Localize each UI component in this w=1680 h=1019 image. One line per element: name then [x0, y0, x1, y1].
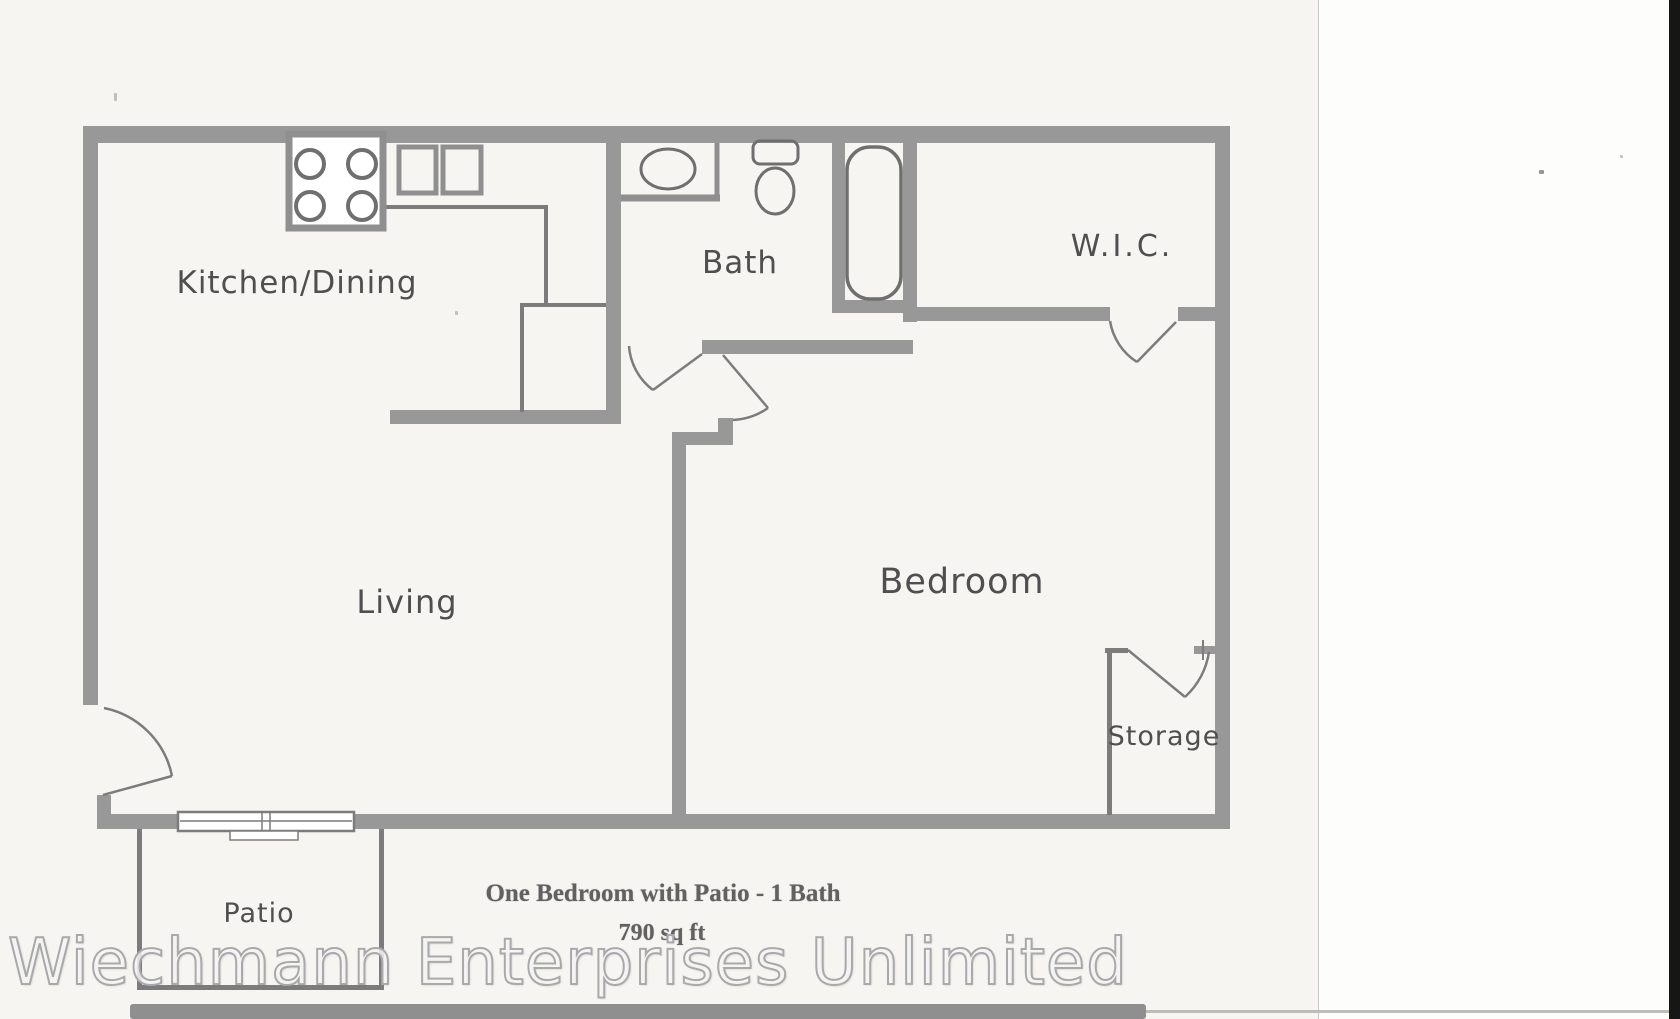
storage-wall-top [1105, 648, 1128, 653]
storage-door-arc-icon [1185, 652, 1209, 697]
room-label-living: Living [337, 585, 477, 620]
wall-bottom-left [97, 814, 180, 829]
kitchen-counter-edge [383, 205, 548, 209]
bath-door-arc-icon [629, 346, 653, 390]
sliding-door-icon [178, 812, 354, 840]
wic-door-arc-icon [1110, 321, 1137, 362]
toilet-tank-icon [753, 141, 798, 164]
wall-wic-bottom [908, 307, 1110, 321]
wall-storage-door-jamb [1194, 646, 1215, 654]
room-label-kitchen-dining: Kitchen/Dining [172, 266, 422, 300]
wall-left [83, 143, 98, 705]
toilet-bowl-icon [756, 168, 794, 214]
bedroom-door-leaf-icon [723, 355, 768, 408]
wic-door-leaf-icon [1137, 322, 1176, 362]
scanned-floorplan-page: Kitchen/Dining Bath W.I.C. Living Bedroo… [0, 0, 1680, 1019]
wall-bottom-right [351, 814, 1230, 829]
kitchen-fixtures [289, 134, 481, 228]
wall-bath-bottom [702, 340, 913, 354]
wall-bath-left [606, 143, 621, 424]
walls [83, 126, 1230, 829]
plan-title: One Bedroom with Patio - 1 Bath [463, 880, 863, 908]
kitchen-sink-icon [443, 147, 481, 193]
entry-door-arc-icon [104, 708, 172, 776]
pantry-wall-left [520, 303, 524, 412]
room-label-patio: Patio [204, 899, 314, 929]
wall-wic-bottom-stub [1178, 307, 1215, 321]
room-label-storage: Storage [1107, 722, 1221, 752]
wall-bedroom-divider [672, 432, 686, 829]
door-swings [103, 321, 1209, 795]
wall-wic-left [903, 143, 917, 322]
wall-tub-left [832, 143, 845, 313]
stove-icon [289, 134, 383, 228]
wall-kitchen-bottom [390, 410, 612, 424]
entry-door-leaf-icon [103, 776, 172, 795]
pantry-wall-top [520, 303, 606, 307]
storage-door-leaf-icon [1128, 650, 1185, 697]
kitchen-counter-return [544, 205, 548, 305]
wall-bedroom-door-jamb [718, 418, 733, 432]
wall-bedroom-jog [672, 432, 733, 445]
slider-inner-panel [230, 831, 298, 840]
wall-tub-bottom [832, 300, 908, 313]
room-label-bedroom: Bedroom [872, 563, 1052, 602]
kitchen-sink-icon [399, 147, 436, 193]
room-label-bath: Bath [690, 246, 790, 280]
bath-door-leaf-icon [653, 354, 702, 390]
bathtub-icon [847, 147, 901, 299]
wall-top [83, 126, 1230, 143]
bedroom-door-arc-icon [733, 408, 768, 420]
watermark-text: Wiechmann Enterprises Unlimited [8, 928, 1668, 1003]
floorplan-drawing [0, 0, 1680, 1019]
vanity-sink-icon [641, 149, 695, 189]
room-label-wic: W.I.C. [1060, 230, 1184, 263]
